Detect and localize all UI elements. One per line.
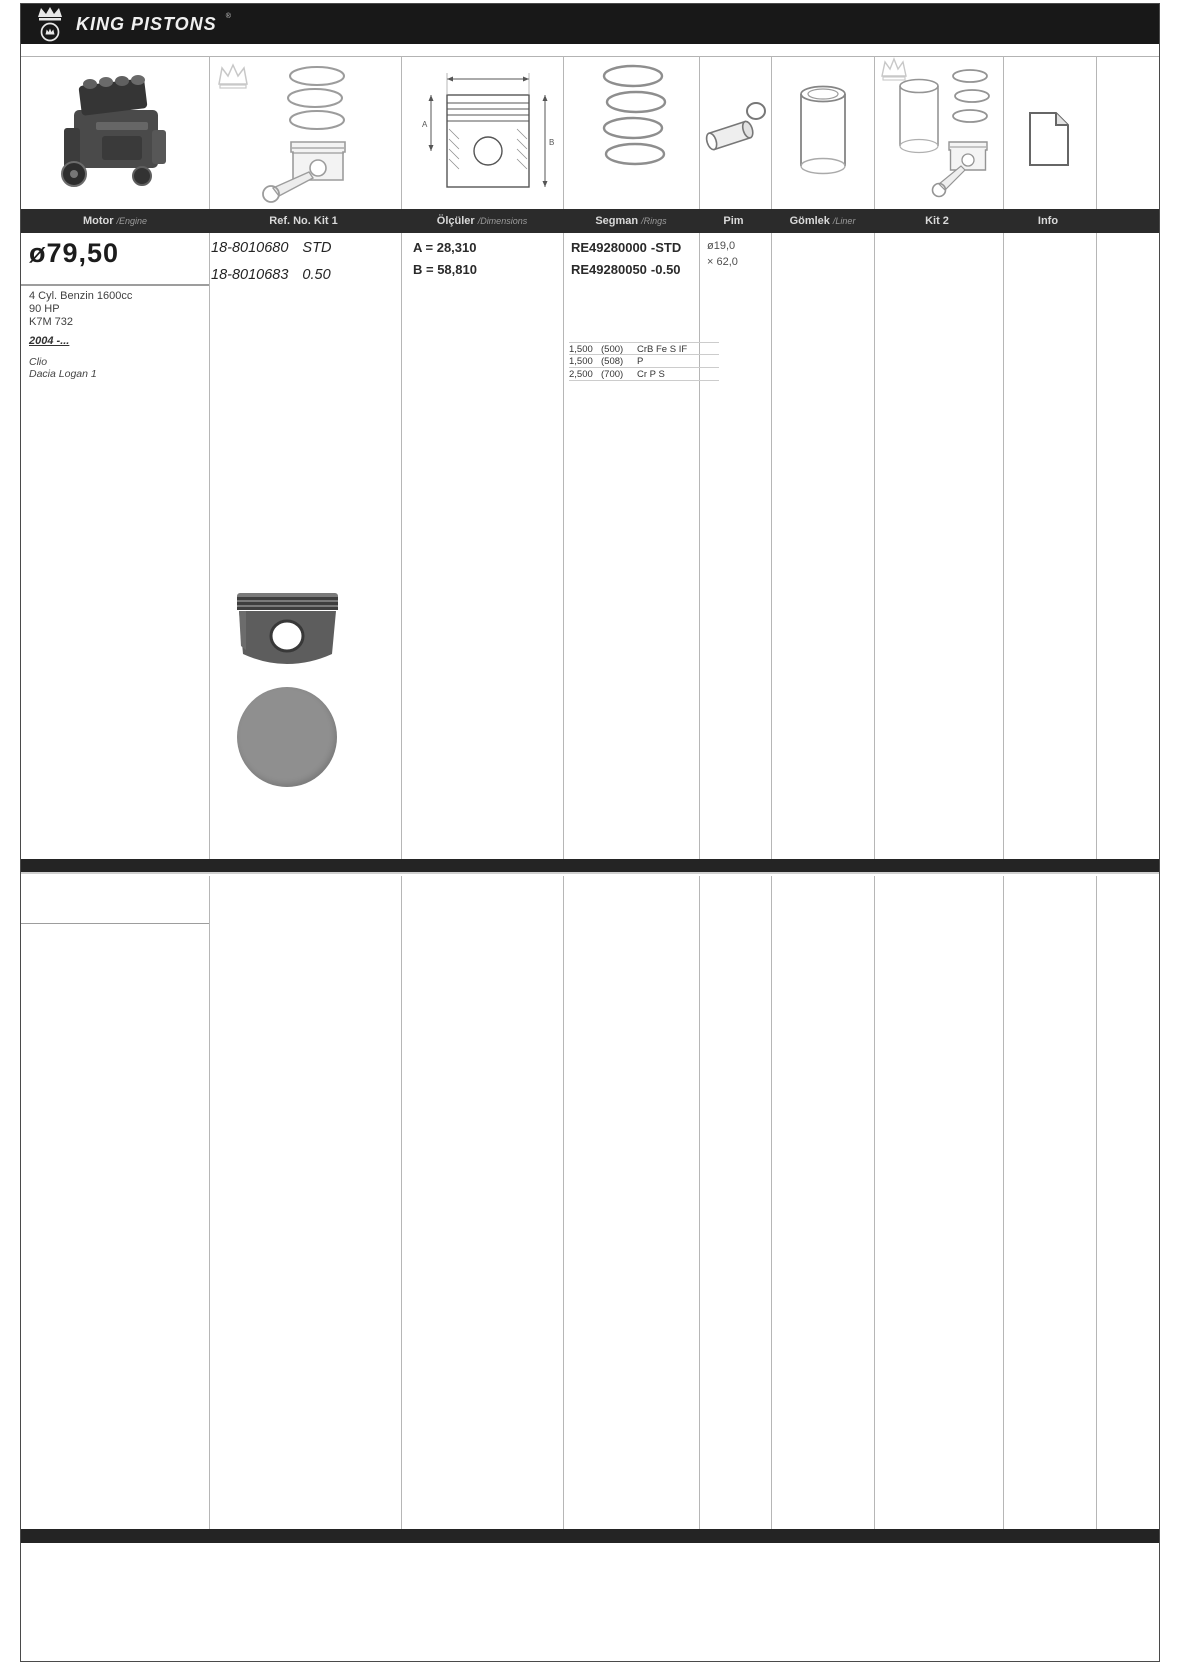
column-divider	[563, 876, 564, 1529]
engine-description-line: K7M 732	[29, 316, 132, 329]
column-header-liner: Gömlek /Liner	[771, 209, 874, 233]
catalog-sheet: KING PISTONS ®	[20, 3, 1160, 1662]
column-header-ref-no-kit-1: Ref. No. Kit 1	[209, 209, 401, 233]
cylinder-liner-sketch	[793, 82, 853, 182]
column-divider	[1096, 233, 1097, 859]
ring-spec-row: 2,500 (700) Cr P S	[569, 368, 719, 381]
column-divider	[209, 233, 210, 859]
column-header-motor: Motor /Engine	[21, 209, 209, 233]
info-document-icon	[1027, 110, 1071, 168]
ring-ref-number: RE49280050-0.50	[571, 262, 681, 277]
ring-ref-number: RE49280000-STD	[571, 240, 681, 255]
column-divider	[771, 876, 772, 1529]
column-divider	[699, 876, 700, 1529]
column-divider	[401, 233, 402, 859]
brand-header-bar: KING PISTONS ®	[21, 4, 1159, 44]
ring-spec-table: 1,500 (500) CrB Fe S IF 1,500 (508) P 2,…	[569, 342, 719, 381]
column-divider	[563, 233, 564, 859]
catalog-page: KING PISTONS ®	[0, 0, 1180, 1669]
column-divider	[401, 876, 402, 1529]
piston-top-view-image	[237, 687, 337, 787]
piston-pin-sketch	[705, 94, 767, 164]
column-divider	[699, 56, 700, 209]
engine-description-line: 4 Cyl. Benzin 1600cc	[29, 290, 132, 303]
column-header-dimensions: Ölçüler /Dimensions	[401, 209, 563, 233]
vehicle-model: Dacia Logan 1	[29, 368, 97, 380]
diagram-label-a: A	[422, 120, 428, 129]
column-divider	[563, 56, 564, 209]
table-header-row: Motor /Engine Ref. No. Kit 1 Ölçüler /Di…	[21, 209, 1159, 233]
brand-trademark: ®	[226, 13, 231, 20]
column-header-pin: Pim	[699, 209, 771, 233]
engine-description-line: 90 HP	[29, 303, 132, 316]
dimension-b: B = 58,810	[413, 262, 477, 277]
vehicle-model: Clio	[29, 356, 97, 368]
column-divider	[209, 876, 210, 1529]
ring-spec-row: 1,500 (500) CrB Fe S IF	[569, 342, 719, 355]
piston-kit-2-sketch	[877, 54, 999, 204]
column-divider	[874, 56, 875, 209]
piston-with-connecting-rod-sketch	[213, 58, 393, 206]
column-header-kit-2: Kit 2	[874, 209, 1003, 233]
column-divider	[1003, 56, 1004, 209]
dimension-a: A = 28,310	[413, 240, 476, 255]
column-divider	[699, 233, 700, 859]
bore-underline-empty-row	[21, 923, 209, 924]
engine-photo	[56, 70, 176, 192]
diagram-label-b: B	[549, 138, 554, 147]
column-divider	[771, 233, 772, 859]
column-divider	[209, 56, 210, 209]
column-divider	[1096, 876, 1097, 1529]
column-divider	[1096, 56, 1097, 209]
piston-photo-image	[234, 592, 341, 664]
column-divider	[1003, 233, 1004, 859]
engine-description: 4 Cyl. Benzin 1600cc 90 HP K7M 732	[29, 290, 132, 329]
row-divider-bar	[21, 859, 1159, 874]
column-divider	[401, 56, 402, 209]
brand-name: KING PISTONS	[76, 14, 217, 35]
column-header-rings: Segman /Rings	[563, 209, 699, 233]
crown-piston-logo-icon	[33, 6, 67, 42]
pin-diameter: ø19,0	[707, 240, 735, 252]
ring-spec-row: 1,500 (508) P	[569, 355, 719, 368]
column-divider	[874, 876, 875, 1529]
ref-kit-number: 18-80106830.50	[211, 267, 331, 283]
column-divider	[771, 56, 772, 209]
pin-length: × 62,0	[707, 256, 738, 268]
column-divider	[874, 233, 875, 859]
vehicle-models: Clio Dacia Logan 1	[29, 356, 97, 380]
column-header-info: Info	[1003, 209, 1096, 233]
bore-size: ø79,50	[29, 238, 119, 269]
piston-dimension-diagram: A B	[419, 59, 557, 205]
ref-kit-number: 18-8010680STD	[211, 240, 331, 256]
bottom-bar	[21, 1529, 1159, 1543]
year-range: 2004 -...	[29, 335, 69, 347]
column-divider	[1003, 876, 1004, 1529]
bore-underline	[21, 284, 209, 286]
piston-rings-sketch	[591, 62, 676, 174]
